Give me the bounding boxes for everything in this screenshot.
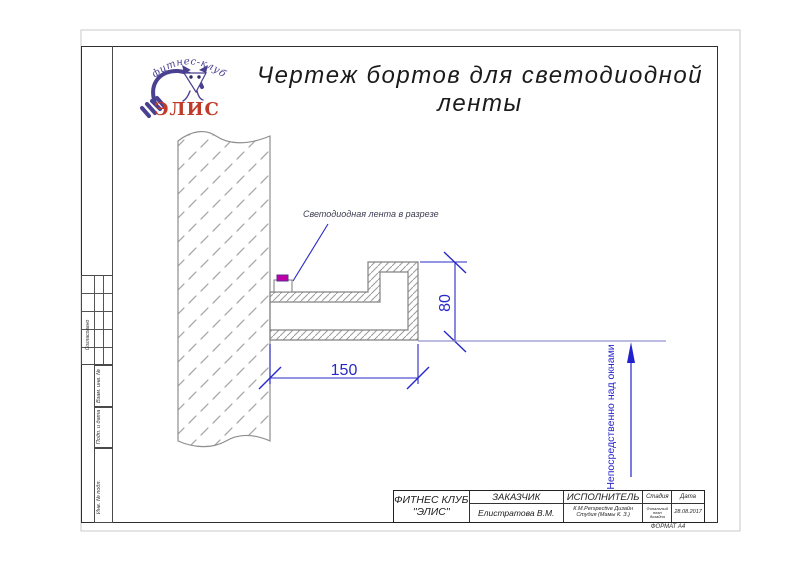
- company-line2: ''ЭЛИС'': [413, 507, 450, 518]
- customer-label: ЗАКАЗЧИК: [470, 491, 563, 504]
- date-value: 28.08.2017: [672, 504, 704, 522]
- company-line1: ФИТНЕС КЛУБ: [394, 495, 468, 506]
- stage-label: Стадия: [643, 491, 671, 504]
- strip-field-inv-label: Инв. № подл.: [96, 480, 102, 514]
- format-note: ФОРМАТ А4: [628, 524, 708, 530]
- title-block: ФИТНЕС КЛУБ ''ЭЛИС'' ЗАКАЗЧИК Елистратов…: [393, 490, 705, 523]
- stage-value-line3: дизайна: [650, 515, 665, 519]
- contractor-value-line2: Студия (Мамы К. З.): [576, 513, 630, 519]
- date-label: Дата: [672, 491, 704, 504]
- page-title: Чертеж бортов для светодиодной ленты: [240, 62, 720, 118]
- title-block-company-cell: ФИТНЕС КЛУБ ''ЭЛИС'': [394, 491, 469, 522]
- approved-label: Согласовано: [85, 320, 91, 351]
- logo-club-name: ЭЛИС: [148, 99, 226, 120]
- title-block-contractor-cell: ИСПОЛНИТЕЛЬ К.М.Perspective Дизайн Студи…: [563, 491, 642, 522]
- strip-field-vzam-label: Взам. инв. №: [96, 369, 102, 403]
- drawing-sheet: Светодиодная лента в разрезе 80 150 Непо…: [0, 0, 800, 579]
- contractor-label: ИСПОЛНИТЕЛЬ: [564, 491, 642, 504]
- title-block-date-cell: Дата 28.08.2017: [671, 491, 704, 522]
- title-block-stage-cell: Стадия Финальный план дизайна: [642, 491, 671, 522]
- customer-value: Елистратова В.М.: [470, 504, 563, 522]
- strip-field-podp-label: Подп. и дата: [96, 410, 102, 444]
- title-block-customer-cell: ЗАКАЗЧИК Елистратова В.М.: [469, 491, 563, 522]
